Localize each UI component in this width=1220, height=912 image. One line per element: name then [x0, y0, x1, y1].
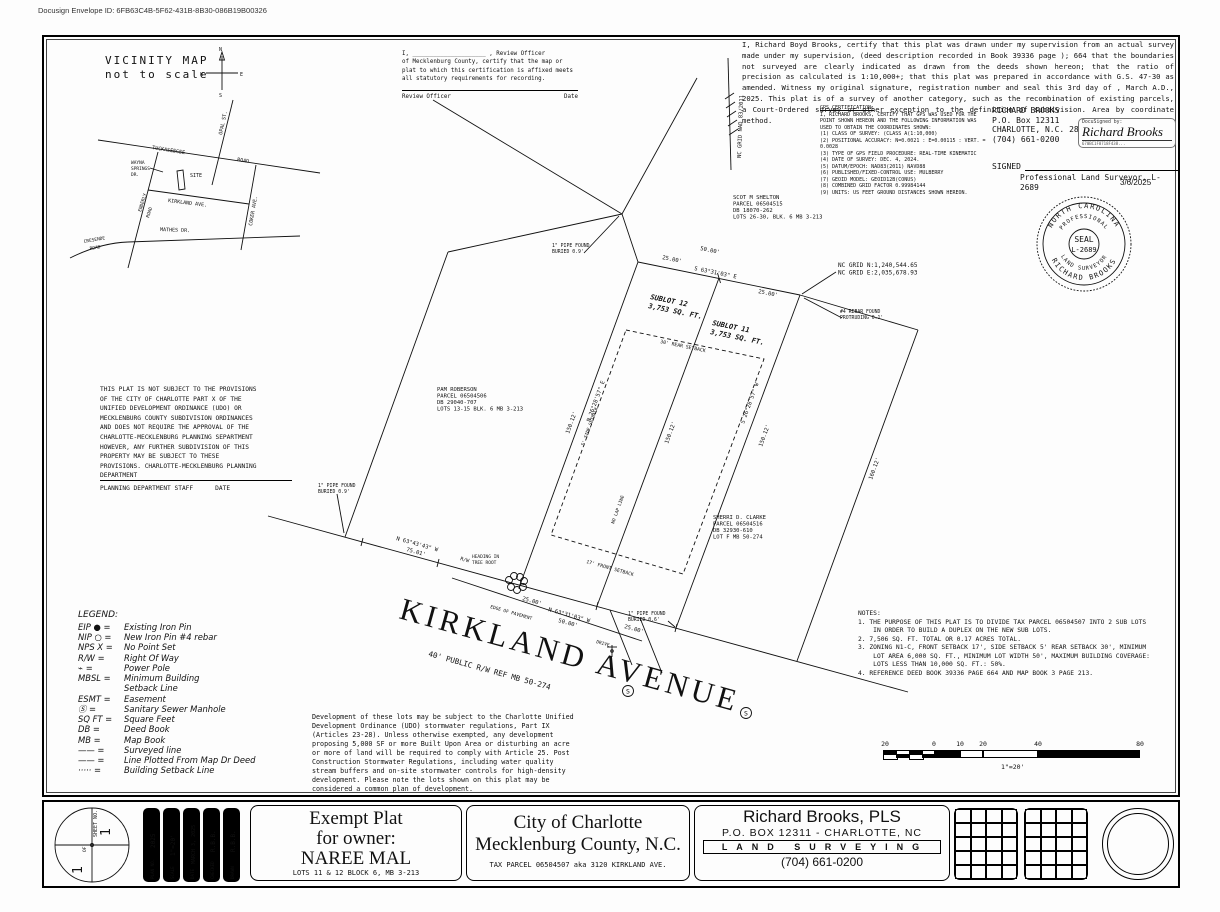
sheet-number: 1 — [99, 828, 114, 836]
svg-text:SCOT M SHELTON: SCOT M SHELTON — [733, 195, 779, 201]
tie-lines — [433, 78, 697, 214]
rebar-note-2: PROTRUDING 0.1' — [840, 315, 883, 321]
notes-block: NOTES: 1. THE PURPOSE OF THIS PLAT IS TO… — [858, 610, 1176, 678]
rear-total-dim: 50.00' — [700, 246, 721, 256]
front-setback-label: 17' FRONT SETBACK — [585, 559, 634, 578]
rear-left-dim: 25.00' — [662, 255, 683, 265]
plat-sheet: Docusign Envelope ID: 6FB63C4B-5F62-431B… — [0, 0, 1220, 912]
svg-text:DB 29040-707: DB 29040-707 — [437, 400, 477, 406]
rw-label: R/W — [459, 556, 470, 564]
planning-staff-label: PLANNING DEPARTMENT STAFF — [100, 485, 193, 492]
firm-block: Richard Brooks, PLS P.O. BOX 12311 - CHA… — [694, 805, 950, 881]
stamp-circle — [1102, 808, 1174, 880]
revision-grid — [1024, 808, 1088, 880]
note-item: 1. THE PURPOSE OF THIS PLAT IS TO DIVIDE… — [858, 619, 1176, 636]
strip-label: DRAWN — [230, 866, 235, 879]
scale-label: 10 — [956, 740, 964, 748]
legend: LEGEND: EIP ● =Existing Iron Pin NIP ○ =… — [78, 610, 293, 776]
lap-line-label: NO LAP LINE — [610, 494, 626, 524]
scale-label: 20 — [881, 740, 889, 748]
survey-tick-marks — [361, 273, 721, 632]
legend-item: EIP ● =Existing Iron Pin — [78, 622, 293, 632]
rebar-note-1: #4 REBAR FOUND — [840, 309, 881, 315]
legend-item: MBSL =Minimum Building Setback Line — [78, 673, 293, 694]
rear-bearing: S 63°31'03" E — [694, 266, 737, 280]
svg-text:DB 18070-262: DB 18070-262 — [733, 208, 773, 214]
svg-text:PAM ROBERSON: PAM ROBERSON — [437, 387, 477, 393]
svg-text:PARCEL 06504506: PARCEL 06504506 — [437, 394, 487, 400]
nc-grid-axis-label: NC GRID NAD 83/2011 — [737, 95, 745, 158]
strip-value: 2025 — [150, 833, 157, 848]
nc-grid-northing: NC GRID N:1,240,544.65 — [838, 262, 918, 269]
legend-item: Ⓢ =Sanitary Sewer Manhole — [78, 704, 293, 714]
firm-name: Richard Brooks, PLS — [695, 808, 949, 827]
firm-phone: (704) 661-0200 — [695, 855, 949, 869]
surveyor-seal: NORTH CAROLINA RICHARD BROOKS PROFESSION… — [1037, 197, 1131, 291]
legend-title: LEGEND: — [78, 610, 293, 621]
front-right-dim: 25.00' — [623, 624, 644, 635]
sheet-info-block: SHEET NO. 1 OF 1 PLAN NO. 2025 SCALE 1"=… — [48, 804, 244, 884]
svg-text:DB 32930-610: DB 32930-610 — [713, 528, 753, 534]
legend-item: MB =Map Book — [78, 735, 293, 745]
seal-word: SEAL — [1074, 235, 1093, 244]
strip-label: SCALE — [170, 866, 175, 879]
sheet-total: 1 — [71, 866, 86, 874]
planning-date-label: DATE — [215, 485, 230, 492]
svg-text:NORTH CAROLINA: NORTH CAROLINA — [1046, 202, 1121, 229]
scale-label: 0 — [932, 740, 936, 748]
strip-value: R.B.B. — [230, 830, 237, 852]
legend-item: —— =Line Plotted From Map Dr Deed — [78, 755, 293, 765]
exempt-line1: Exempt Plat — [251, 809, 461, 829]
manhole-letter: S — [744, 710, 748, 718]
pipe-note-f1: 1" PIPE FOUND — [628, 611, 666, 617]
rear-right-dim: 25.00' — [758, 289, 779, 299]
legend-item: ESMT =Easement — [78, 694, 293, 704]
heading-note-2: TREE ROOT — [472, 560, 497, 566]
legend-item: DB =Deed Book — [78, 724, 293, 734]
front-left-dim: 25.00' — [521, 596, 542, 607]
pipe-note-f2: BURIED 0.6' — [628, 617, 660, 623]
nc-grid-axis — [725, 58, 738, 170]
strip-value: MARCH 3, 2025 — [191, 825, 197, 864]
firm-land-surveying: LAND SURVEYING — [703, 840, 941, 854]
legend-item: NIP ○ =New Iron Pin #4 rebar — [78, 632, 293, 642]
legend-item: R/W =Right Of Way — [78, 653, 293, 663]
side-right-bearing: S 26°28'57" W — [740, 382, 761, 425]
scale-caption: 1"=20' — [1001, 763, 1024, 771]
notes-title: NOTES: — [858, 610, 1176, 619]
svg-text:LOT F MB 50-274: LOT F MB 50-274 — [713, 535, 763, 541]
svg-text:PARCEL 06504516: PARCEL 06504516 — [713, 522, 763, 528]
scale-bar: 20 0 10 20 40 80 1"=20' — [883, 740, 1145, 776]
docusign-envelope-id: Docusign Envelope ID: 6FB63C4B-5F62-431B… — [38, 6, 267, 15]
sheet-of-label: OF — [82, 846, 88, 852]
scale-label: 20 — [979, 740, 987, 748]
note-item: 4. REFERENCE DEED BOOK 39336 PAGE 664 AN… — [858, 670, 1176, 679]
strip-label: DATE — [190, 868, 195, 879]
parcel-label-clarke: SHERRI D. CLARKE PARCEL 06504516 DB 3293… — [713, 515, 766, 541]
legend-item: ⌁ =Power Pole — [78, 663, 293, 673]
tax-parcel-note: TAX PARCEL 06504507 aka 3120 KIRKLAND AV… — [467, 861, 689, 869]
parcel-label-shelton: SCOT M SHELTON PARCEL 06504515 DB 18070-… — [733, 195, 822, 221]
exempt-lots-note: LOTS 11 & 12 BLOCK 6, MB 3-213 — [251, 869, 461, 877]
scale-label: 40 — [1034, 740, 1042, 748]
not-subject-statement: THIS PLAT IS NOT SUBJECT TO THE PROVISIO… — [100, 385, 292, 481]
svg-text:LOTS 13-15 BLK. 6 MB 3-213: LOTS 13-15 BLK. 6 MB 3-213 — [437, 407, 523, 413]
seal-top-text: NORTH CAROLINA — [1046, 202, 1121, 229]
pipe-note-b1: 1" PIPE FOUND — [552, 243, 590, 249]
city-line1: City of Charlotte — [467, 812, 689, 834]
legend-item: SQ FT =Square Feet — [78, 714, 293, 724]
svg-text:PARCEL 06504515: PARCEL 06504515 — [733, 202, 783, 208]
scale-label: 80 — [1136, 740, 1144, 748]
side-left-dim: 150.12' — [565, 411, 579, 435]
owner-name: NAREE MAL — [251, 849, 461, 869]
seal-license: L-2689 — [1071, 246, 1096, 254]
exempt-line2: for owner: — [251, 829, 461, 849]
note-item: 3. ZONING N1-C, FRONT SETBACK 17', SIDE … — [858, 644, 1176, 670]
exempt-plat-block: Exempt Plat for owner: NAREE MAL LOTS 11… — [250, 805, 462, 881]
heading-note-1: HEADING IN — [472, 554, 499, 560]
strip-label: PLAN NO. — [150, 859, 155, 879]
legend-item: NPS X =No Point Set — [78, 642, 293, 652]
revision-grid — [954, 808, 1018, 880]
strip-label: CHECKED — [210, 861, 215, 879]
pipe-note-b2: BURIED 0.9' — [552, 249, 584, 255]
pipe-note-e1: 1" PIPE FOUND — [318, 483, 356, 489]
legend-item: —— =Surveyed line — [78, 745, 293, 755]
pipe-note-e2: BURIED 0.9' — [318, 489, 350, 495]
parcel-boundary-lines — [268, 214, 918, 692]
side-right-dim: 150.12' — [758, 424, 772, 448]
rear-setback-label: 30' REAR SETBACK — [660, 339, 707, 354]
tree-icon — [506, 573, 528, 594]
note-item: 2. 7,506 SQ. FT. TOTAL OR 0.17 ACRES TOT… — [858, 636, 1176, 645]
planning-signature-line: PLANNING DEPARTMENT STAFF DATE — [100, 480, 292, 492]
strip-value: 1"=20' — [170, 834, 177, 856]
nc-grid-easting: NC GRID E:2,035,678.93 — [838, 270, 918, 277]
svg-text:SHERRI D. CLARKE: SHERRI D. CLARKE — [713, 515, 766, 521]
city-line2: Mecklenburg County, N.C. — [467, 834, 689, 856]
strip-value: R.B.B. — [210, 830, 217, 852]
stormwater-note: Development of these lots may be subject… — [312, 713, 620, 794]
parcel-label-roberson: PAM ROBERSON PARCEL 06504506 DB 29040-70… — [437, 387, 523, 413]
city-block: City of Charlotte Mecklenburg County, N.… — [466, 805, 690, 881]
firm-address: P.O. BOX 12311 - CHARLOTTE, NC — [695, 827, 949, 839]
mid-line-dim: 150.12' — [664, 421, 678, 445]
legend-item: ····· =Building Setback Line — [78, 765, 293, 775]
svg-text:LOTS 26-30, BLK. 6 MB 3-213: LOTS 26-30, BLK. 6 MB 3-213 — [733, 215, 822, 221]
title-strip: SHEET NO. 1 OF 1 PLAN NO. 2025 SCALE 1"=… — [42, 800, 1180, 888]
